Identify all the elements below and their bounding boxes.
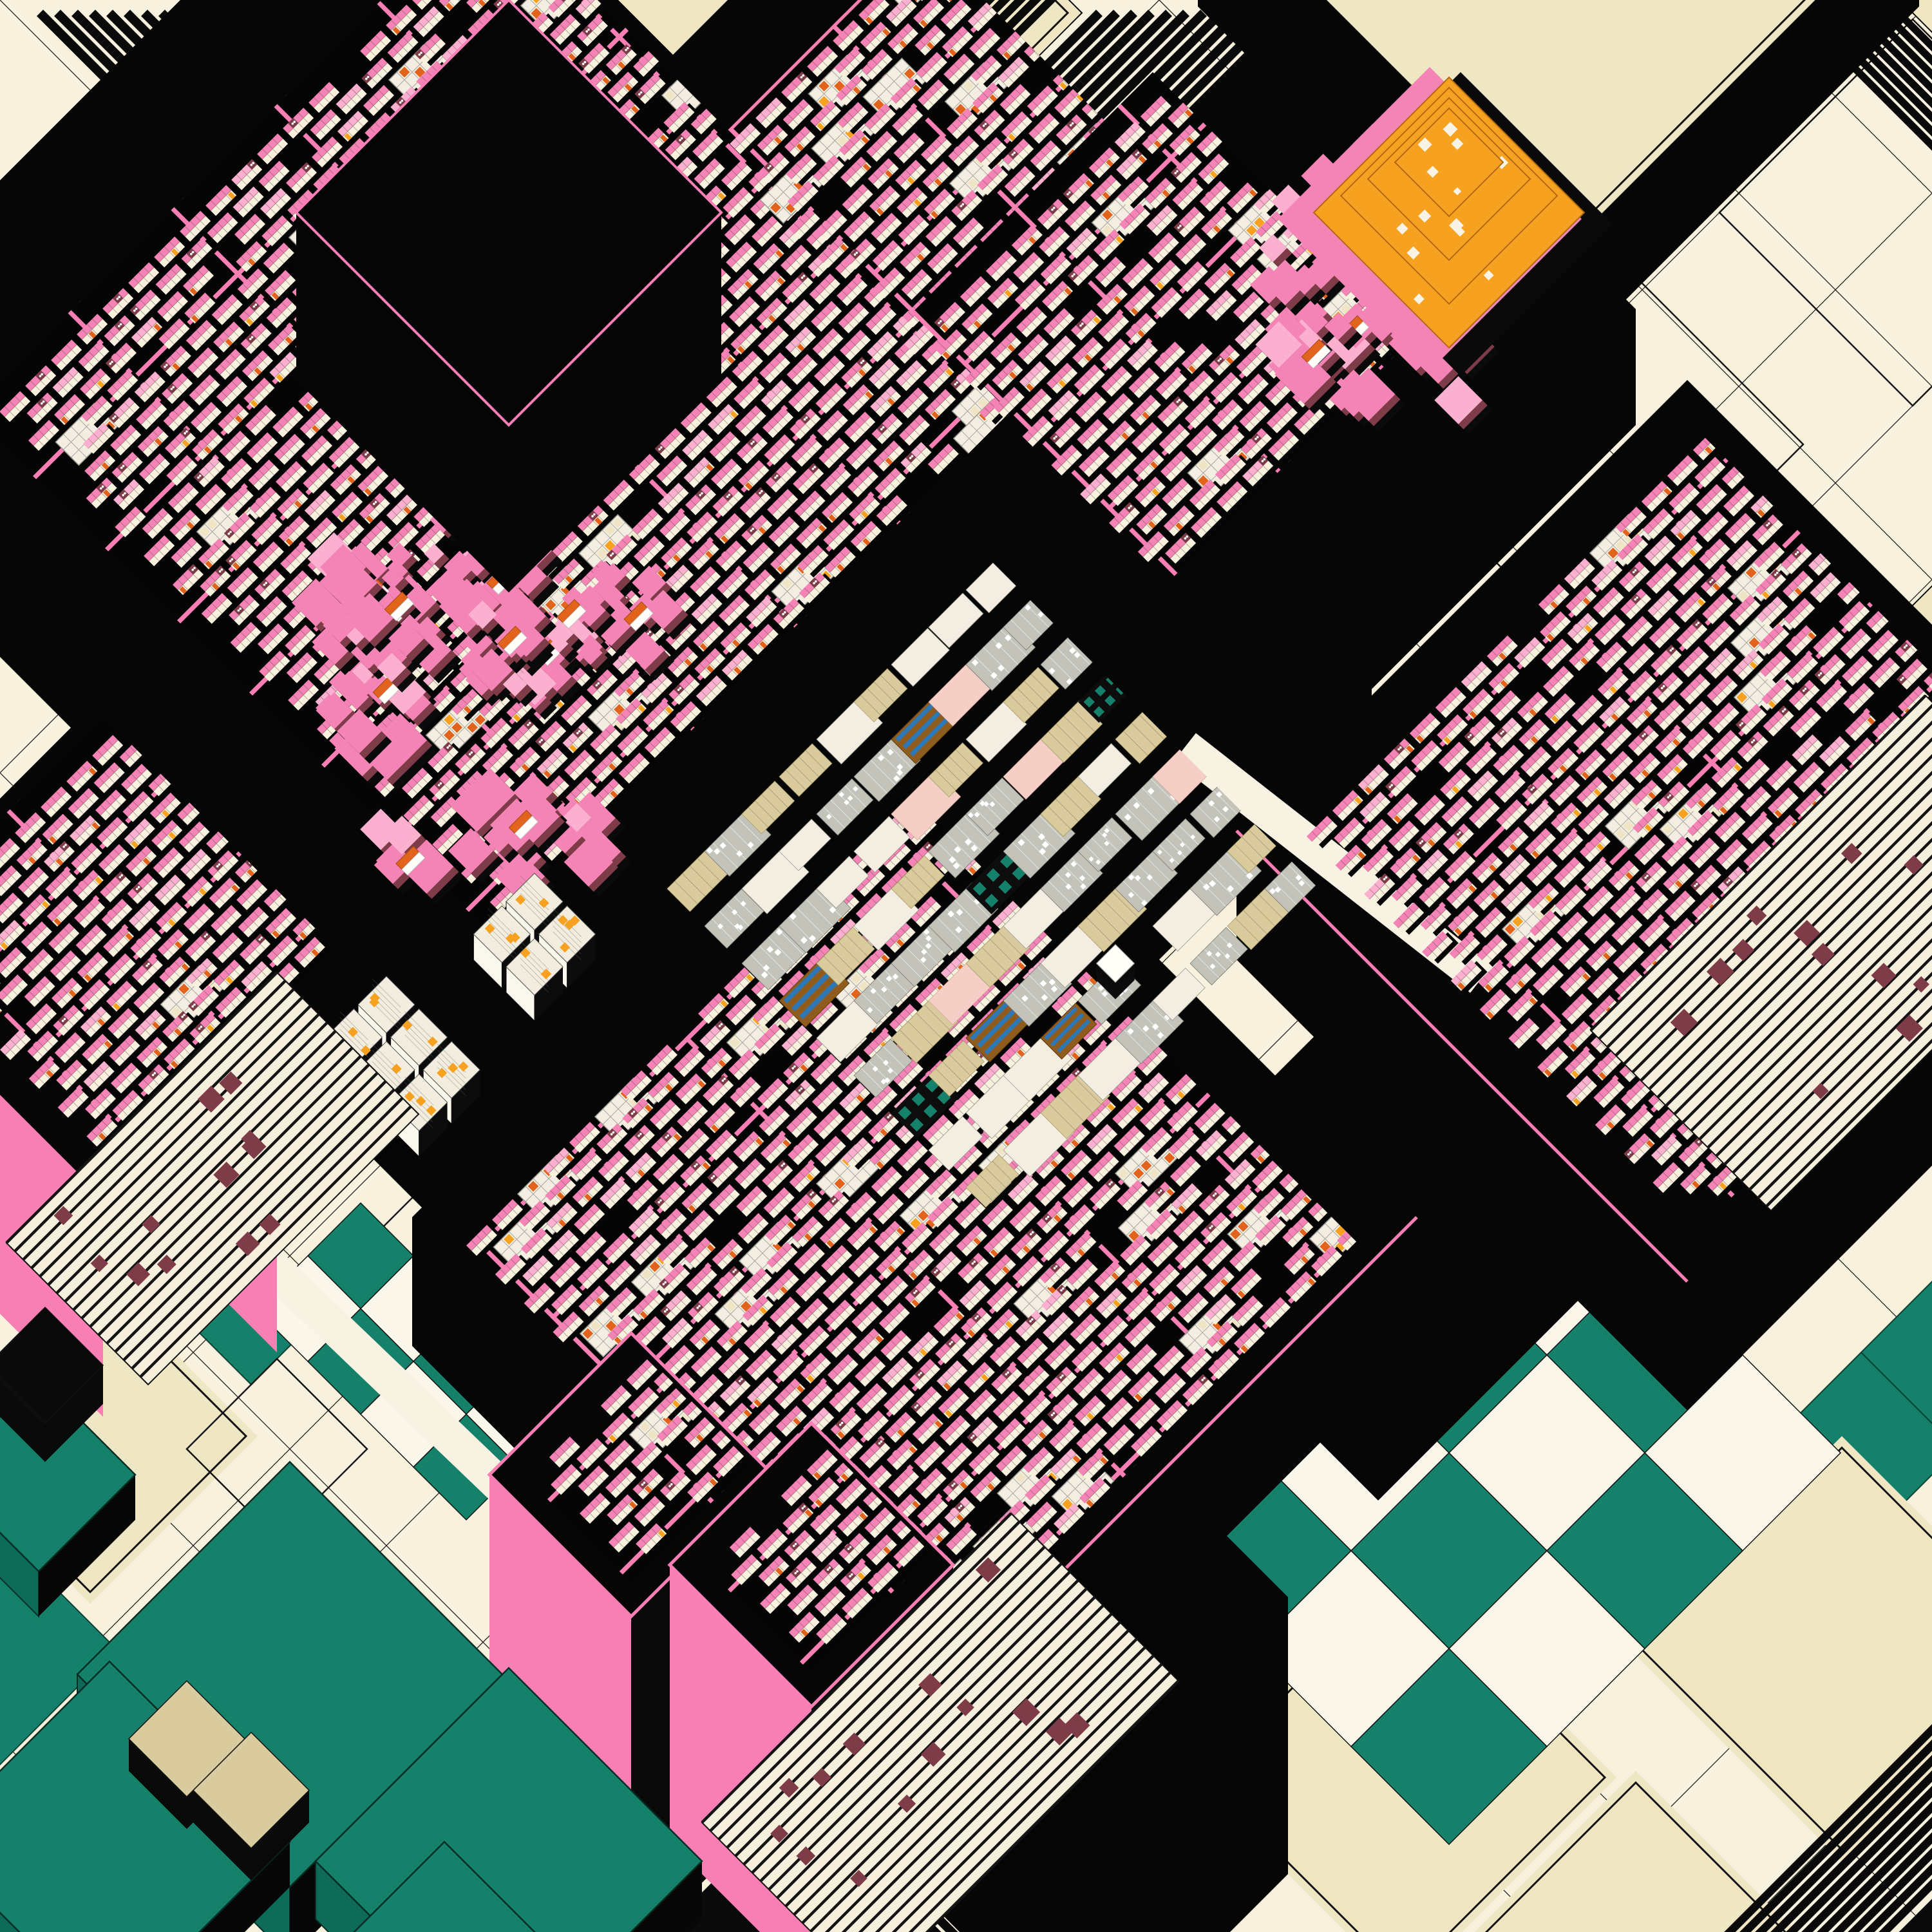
isometric-generative-city-scene (0, 0, 1932, 1932)
scene-canvas (0, 0, 1932, 1932)
